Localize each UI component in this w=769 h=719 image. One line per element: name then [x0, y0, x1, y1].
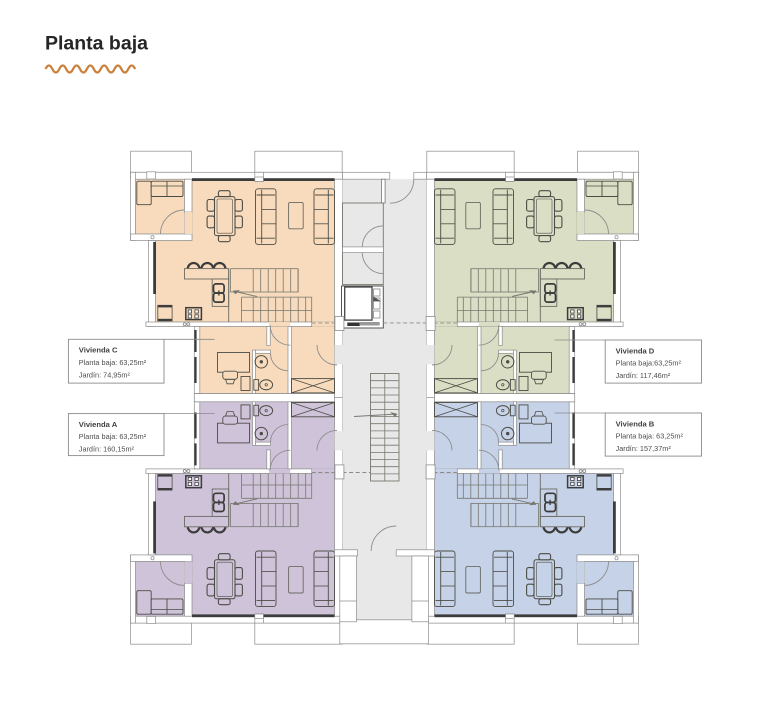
svg-text:Vivienda B: Vivienda B	[616, 419, 655, 428]
svg-text:Planta baja:63,25m²: Planta baja:63,25m²	[616, 359, 682, 368]
svg-text:Planta baja: 63,25m²: Planta baja: 63,25m²	[79, 358, 147, 367]
svg-text:Planta baja: 63,25m²: Planta baja: 63,25m²	[616, 432, 684, 441]
svg-text:Vivienda D: Vivienda D	[616, 346, 655, 355]
svg-text:Planta baja: Planta baja	[45, 33, 148, 55]
svg-text:Jardín: 160,15m²: Jardín: 160,15m²	[79, 445, 135, 454]
svg-text:Jardín: 74,95m²: Jardín: 74,95m²	[79, 370, 131, 379]
svg-text:Vivienda C: Vivienda C	[79, 346, 118, 355]
svg-text:Planta baja: 63,25m²: Planta baja: 63,25m²	[79, 432, 147, 441]
svg-text:Jardín: 157,37m²: Jardín: 157,37m²	[616, 444, 672, 453]
svg-text:Vivienda A: Vivienda A	[79, 420, 118, 429]
svg-text:Jardín: 117,46m²: Jardín: 117,46m²	[616, 371, 671, 380]
